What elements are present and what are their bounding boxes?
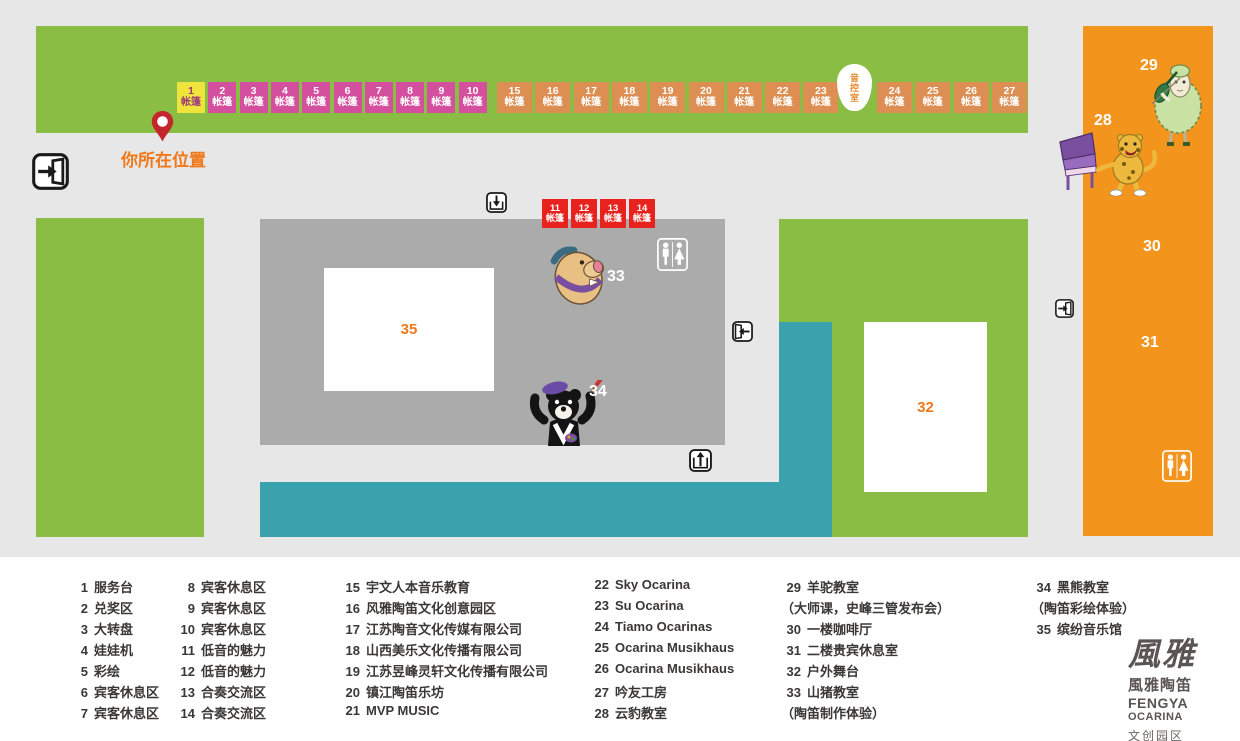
tent-marker-5[interactable]: 5帐篷 bbox=[302, 82, 330, 113]
tent-marker-9[interactable]: 9帐篷 bbox=[427, 82, 455, 113]
restroom-icon-east[interactable] bbox=[1162, 450, 1192, 482]
boar-character-icon bbox=[548, 238, 610, 310]
legend-item-30: 30一楼咖啡厅 bbox=[781, 619, 872, 638]
tent-marker-2[interactable]: 2帐篷 bbox=[208, 82, 236, 113]
your-location-label: 你所在位置 bbox=[121, 146, 206, 171]
legend-item-note: （大师课，史峰三管发布会） bbox=[781, 598, 950, 617]
entrance-icon-west[interactable] bbox=[32, 151, 69, 192]
legend-item-34: 34黑熊教室 bbox=[1031, 577, 1109, 596]
legend-item-15: 15宇文人本音乐教育 bbox=[340, 577, 470, 596]
tent-marker-3[interactable]: 3帐篷 bbox=[240, 82, 268, 113]
vip-lounge-31-number: 31 bbox=[1141, 334, 1159, 352]
tent-marker-1[interactable]: 1帐篷 bbox=[177, 82, 205, 113]
tent-marker-14[interactable]: 14帐篷 bbox=[629, 199, 655, 228]
exit-icon-building-south[interactable] bbox=[689, 449, 712, 472]
legend-item-29: 29羊驼教室 bbox=[781, 577, 859, 596]
alpaca-room-29-number: 29 bbox=[1140, 57, 1158, 75]
legend-item-22: 22Sky Ocarina bbox=[589, 577, 690, 592]
legend-item-26: 26Ocarina Musikhaus bbox=[589, 661, 734, 676]
tent-marker-21[interactable]: 21帐篷 bbox=[727, 82, 762, 113]
legend-item-13: 13合奏交流区 bbox=[175, 682, 266, 701]
walkway-horizontal bbox=[260, 482, 832, 537]
legend-item-9: 9宾客休息区 bbox=[175, 598, 266, 617]
tent-marker-11[interactable]: 11帐篷 bbox=[542, 199, 568, 228]
tent-marker-16[interactable]: 16帐篷 bbox=[535, 82, 570, 113]
legend-item-23: 23Su Ocarina bbox=[589, 598, 684, 613]
hall-35-number: 35 bbox=[401, 321, 418, 338]
entrance-icon-building-top[interactable] bbox=[486, 192, 507, 213]
legend-item-19: 19江苏昱峰灵轩文化传播有限公司 bbox=[340, 661, 548, 680]
tent-marker-19[interactable]: 19帐篷 bbox=[650, 82, 685, 113]
legend-item-note: （陶笛制作体验） bbox=[781, 703, 885, 722]
logo-calligraphy: 風雅 bbox=[1128, 638, 1214, 670]
cafe-30-number: 30 bbox=[1143, 238, 1161, 256]
fengya-logo: 風雅 風雅陶笛 FENGYA OCARINA 文创园区 bbox=[1128, 638, 1214, 741]
legend-item-33: 33山猪教室 bbox=[781, 682, 859, 701]
leopard-piano-character-icon bbox=[1058, 128, 1162, 196]
legend-item-31: 31二楼贵宾休息室 bbox=[781, 640, 898, 659]
legend-item-20: 20镇江陶笛乐坊 bbox=[340, 682, 444, 701]
tent-marker-8[interactable]: 8帐篷 bbox=[396, 82, 424, 113]
logo-name-en-line1: FENGYA bbox=[1128, 695, 1214, 711]
legend-item-25: 25Ocarina Musikhaus bbox=[589, 640, 734, 655]
sound-control-room-label: 音控室 bbox=[848, 73, 861, 103]
legend-item-27: 27吟友工房 bbox=[589, 682, 667, 701]
legend-item-10: 10宾客休息区 bbox=[175, 619, 266, 638]
legend-item-32: 32户外舞台 bbox=[781, 661, 859, 680]
tent-marker-20[interactable]: 20帐篷 bbox=[689, 82, 724, 113]
tent-marker-4[interactable]: 4帐篷 bbox=[271, 82, 299, 113]
tent-marker-7[interactable]: 7帐篷 bbox=[365, 82, 393, 113]
legend-item-7: 7宾客休息区 bbox=[68, 703, 159, 722]
legend-item-4: 4娃娃机 bbox=[68, 640, 133, 659]
location-pin-icon bbox=[150, 110, 175, 143]
legend-item-8: 8宾客休息区 bbox=[175, 577, 266, 596]
legend-item-3: 3大转盘 bbox=[68, 619, 133, 638]
tent-marker-10[interactable]: 10帐篷 bbox=[459, 82, 487, 113]
restroom-icon-building[interactable] bbox=[657, 238, 688, 271]
tent-marker-6[interactable]: 6帐篷 bbox=[334, 82, 362, 113]
legend-item-11: 11低音的魅力 bbox=[175, 640, 266, 659]
legend-item-12: 12低音的魅力 bbox=[175, 661, 266, 680]
tent-marker-27[interactable]: 27帐篷 bbox=[992, 82, 1027, 113]
logo-name-en-line2: OCARINA bbox=[1128, 711, 1214, 724]
tent-marker-24[interactable]: 24帐篷 bbox=[877, 82, 912, 113]
venue-map-page: 32 35 1帐篷2帐篷3帐篷4帐篷5帐篷6帐篷7帐篷8帐篷9帐篷10帐篷15帐… bbox=[0, 0, 1240, 741]
tent-marker-25[interactable]: 25帐篷 bbox=[915, 82, 950, 113]
tent-marker-26[interactable]: 26帐篷 bbox=[954, 82, 989, 113]
stage-32-number: 32 bbox=[917, 399, 934, 416]
tent-marker-12[interactable]: 12帐篷 bbox=[571, 199, 597, 228]
legend-item-6: 6宾客休息区 bbox=[68, 682, 159, 701]
entrance-icon-east[interactable] bbox=[1055, 299, 1074, 318]
tent-marker-18[interactable]: 18帐篷 bbox=[612, 82, 647, 113]
map-area: 32 35 1帐篷2帐篷3帐篷4帐篷5帐篷6帐篷7帐篷8帐篷9帐篷10帐篷15帐… bbox=[0, 0, 1240, 557]
logo-subtitle: 文创园区 bbox=[1128, 727, 1214, 741]
legend-item-24: 24Tiamo Ocarinas bbox=[589, 619, 712, 634]
outdoor-stage-32[interactable]: 32 bbox=[864, 322, 987, 492]
legend-item-17: 17江苏陶音文化传媒有限公司 bbox=[340, 619, 522, 638]
walkway-vertical bbox=[779, 322, 832, 537]
leopard-room-28-number: 28 bbox=[1094, 112, 1112, 130]
bear-room-34-number: 34 bbox=[589, 383, 607, 401]
tent-marker-17[interactable]: 17帐篷 bbox=[574, 82, 609, 113]
legend-item-18: 18山西美乐文化传播有限公司 bbox=[340, 640, 522, 659]
legend-item-note: （陶笛彩绘体验） bbox=[1031, 598, 1135, 617]
music-hall-35[interactable]: 35 bbox=[324, 268, 494, 391]
tent-strip-lawn bbox=[36, 26, 1028, 133]
logo-name-cn: 風雅陶笛 bbox=[1128, 674, 1214, 695]
tent-marker-15[interactable]: 15帐篷 bbox=[497, 82, 532, 113]
sheep-violin-character-icon bbox=[1150, 60, 1206, 148]
tent-marker-13[interactable]: 13帐篷 bbox=[600, 199, 626, 228]
legend-item-28: 28云豹教室 bbox=[589, 703, 667, 722]
legend-item-2: 2兑奖区 bbox=[68, 598, 133, 617]
legend-item-16: 16风雅陶笛文化创意园区 bbox=[340, 598, 496, 617]
legend-item-21: 21MVP MUSIC bbox=[340, 703, 439, 718]
legend-item-1: 1服务台 bbox=[68, 577, 133, 596]
tent-marker-23[interactable]: 23帐篷 bbox=[803, 82, 838, 113]
legend-item-5: 5彩绘 bbox=[68, 661, 120, 680]
exit-icon-building-east[interactable] bbox=[732, 321, 753, 342]
legend-item-14: 14合奏交流区 bbox=[175, 703, 266, 722]
tent-marker-22[interactable]: 22帐篷 bbox=[765, 82, 800, 113]
lawn-left bbox=[36, 218, 204, 537]
boar-room-33-number: 33 bbox=[607, 268, 625, 286]
legend-item-35: 35缤纷音乐馆 bbox=[1031, 619, 1122, 638]
